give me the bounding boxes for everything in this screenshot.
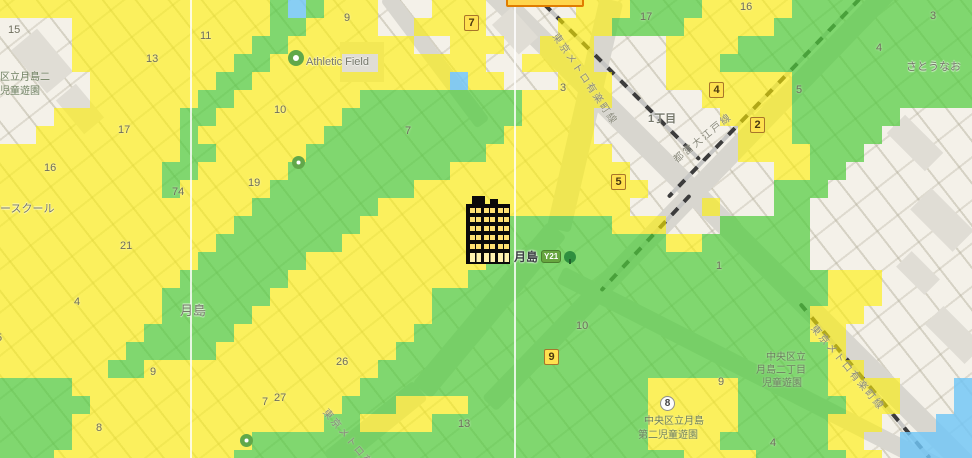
overlay-cell (630, 324, 648, 342)
overlay-cell (540, 162, 558, 180)
overlay-cell (360, 396, 378, 414)
overlay-cell (540, 108, 558, 126)
overlay-cell (342, 90, 360, 108)
overlay-cell (0, 234, 18, 252)
overlay-cell (324, 90, 342, 108)
lot-number-label: 74 (172, 186, 184, 198)
lot-number-label: 7 (405, 125, 411, 137)
overlay-cell (468, 342, 486, 360)
overlay-cell (108, 90, 126, 108)
overlay-cell (432, 126, 450, 144)
overlay-cell (738, 72, 756, 90)
overlay-cell (72, 234, 90, 252)
overlay-cell (396, 108, 414, 126)
overlay-cell (198, 450, 216, 458)
lot-number-label: 7 (262, 396, 268, 408)
overlay-cell (540, 288, 558, 306)
overlay-cell (306, 216, 324, 234)
overlay-cell (540, 144, 558, 162)
overlay-cell (486, 162, 504, 180)
overlay-cell (0, 288, 18, 306)
lot-number-label: 3 (930, 10, 936, 22)
overlay-cell (90, 396, 108, 414)
overlay-cell (738, 450, 756, 458)
map-canvas[interactable]: 1513119171634531071716741921110426992771… (0, 0, 972, 458)
overlay-cell (702, 414, 720, 432)
overlay-cell (468, 54, 486, 72)
lot-number-label: 26 (336, 356, 348, 368)
overlay-cell (702, 396, 720, 414)
overlay-cell (270, 198, 288, 216)
overlay-cell (936, 72, 954, 90)
overlay-cell (792, 234, 810, 252)
overlay-cell (594, 0, 612, 18)
overlay-cell (180, 432, 198, 450)
overlay-cell (234, 198, 252, 216)
overlay-cell (54, 126, 72, 144)
overlay-cell (666, 288, 684, 306)
overlay-cell (414, 216, 432, 234)
overlay-cell (234, 324, 252, 342)
overlay-cell (522, 324, 540, 342)
overlay-cell (792, 216, 810, 234)
overlay-cell (144, 324, 162, 342)
overlay-cell (936, 432, 954, 450)
overlay-cell (468, 72, 486, 90)
overlay-cell (180, 162, 198, 180)
overlay-cell (198, 54, 216, 72)
overlay-cell (270, 162, 288, 180)
poi-marker-icon[interactable] (292, 156, 305, 169)
overlay-cell (90, 234, 108, 252)
overlay-cell (288, 342, 306, 360)
overlay-cell (864, 72, 882, 90)
overlay-cell (558, 378, 576, 396)
overlay-cell (828, 54, 846, 72)
overlay-cell (414, 378, 432, 396)
overlay-cell (252, 36, 270, 54)
overlay-cell (198, 414, 216, 432)
overlay-cell (288, 0, 306, 18)
overlay-cell (414, 324, 432, 342)
overlay-cell (540, 198, 558, 216)
overlay-cell (18, 270, 36, 288)
overlay-cell (144, 342, 162, 360)
overlay-cell (342, 162, 360, 180)
overlay-cell (864, 54, 882, 72)
route-exit-shield: 4 (709, 82, 724, 98)
overlay-cell (270, 18, 288, 36)
overlay-cell (360, 18, 378, 36)
overlay-cell (666, 36, 684, 54)
overlay-cell (162, 72, 180, 90)
overlay-cell (72, 36, 90, 54)
overlay-cell (792, 450, 810, 458)
overlay-cell (486, 378, 504, 396)
overlay-cell (234, 144, 252, 162)
overlay-cell (360, 288, 378, 306)
overlay-cell (216, 396, 234, 414)
overlay-cell (18, 162, 36, 180)
overlay-cell (342, 126, 360, 144)
overlay-cell (828, 414, 846, 432)
overlay-cell (216, 72, 234, 90)
overlay-cell (90, 378, 108, 396)
overlay-cell (792, 252, 810, 270)
overlay-cell (54, 234, 72, 252)
overlay-cell (684, 252, 702, 270)
overlay-cell (576, 360, 594, 378)
overlay-cell (288, 18, 306, 36)
overlay-cell (54, 144, 72, 162)
overlay-cell (144, 234, 162, 252)
overlay-cell (522, 396, 540, 414)
overlay-cell (270, 324, 288, 342)
overlay-cell (810, 360, 828, 378)
overlay-cell (270, 414, 288, 432)
overlay-cell (378, 396, 396, 414)
overlay-cell (288, 288, 306, 306)
station-marker-tsukishima[interactable]: 月島 Y21 (514, 248, 576, 265)
overlay-cell (324, 270, 342, 288)
overlay-cell (738, 270, 756, 288)
overlay-cell (414, 144, 432, 162)
overlay-cell (234, 450, 252, 458)
overlay-cell (720, 36, 738, 54)
overlay-cell (216, 378, 234, 396)
overlay-cell (18, 432, 36, 450)
overlay-cell (360, 252, 378, 270)
overlay-cell (216, 108, 234, 126)
overlay-cell (486, 432, 504, 450)
overlay-cell (810, 270, 828, 288)
overlay-cell (18, 378, 36, 396)
overlay-cell (486, 288, 504, 306)
overlay-cell (198, 342, 216, 360)
overlay-cell (558, 450, 576, 458)
overlay-cell (522, 216, 540, 234)
overlay-cell (234, 54, 252, 72)
lot-number-label: 4 (74, 296, 80, 308)
overlay-cell (270, 252, 288, 270)
overlay-cell (612, 396, 630, 414)
overlay-cell (720, 252, 738, 270)
overlay-cell (198, 0, 216, 18)
overlay-cell (522, 432, 540, 450)
overlay-cell (144, 126, 162, 144)
overlay-cell (270, 144, 288, 162)
station-exit-badge: 8 (660, 396, 675, 411)
overlay-cell (90, 0, 108, 18)
overlay-cell (648, 378, 666, 396)
overlay-cell (720, 450, 738, 458)
overlay-cell (450, 162, 468, 180)
overlay-cell (720, 414, 738, 432)
overlay-cell (180, 126, 198, 144)
overlay-cell (144, 36, 162, 54)
overlay-cell (162, 198, 180, 216)
overlay-cell (828, 144, 846, 162)
overlay-cell (90, 324, 108, 342)
overlay-cell (720, 342, 738, 360)
overlay-cell (774, 162, 792, 180)
overlay-cell (846, 450, 864, 458)
overlay-cell (936, 90, 954, 108)
overlay-cell (756, 450, 774, 458)
overlay-cell (126, 306, 144, 324)
overlay-cell (792, 414, 810, 432)
overlay-cell (126, 144, 144, 162)
overlay-cell (684, 324, 702, 342)
overlay-cell (630, 234, 648, 252)
place-label: Athletic Field (306, 56, 369, 68)
overlay-cell (792, 36, 810, 54)
overlay-cell (504, 378, 522, 396)
overlay-cell (576, 216, 594, 234)
overlay-cell (108, 342, 126, 360)
overlay-cell (738, 306, 756, 324)
overlay-cell (126, 342, 144, 360)
overlay-cell (954, 36, 972, 54)
overlay-cell (828, 378, 846, 396)
overlay-cell (540, 90, 558, 108)
overlay-cell (522, 126, 540, 144)
overlay-cell (126, 90, 144, 108)
overlay-cell (828, 18, 846, 36)
overlay-cell (468, 126, 486, 144)
overlay-cell (306, 144, 324, 162)
overlay-cell (774, 216, 792, 234)
overlay-cell (486, 36, 504, 54)
overlay-cell (612, 270, 630, 288)
overlay-cell (936, 414, 954, 432)
overlay-cell (792, 432, 810, 450)
overlay-cell (594, 414, 612, 432)
overlay-cell (342, 288, 360, 306)
overlay-cell (36, 252, 54, 270)
overlay-cell (558, 288, 576, 306)
overlay-cell (18, 396, 36, 414)
overlay-cell (684, 342, 702, 360)
overlay-cell (702, 270, 720, 288)
overlay-cell (828, 36, 846, 54)
overlay-cell (630, 360, 648, 378)
overlay-cell (720, 396, 738, 414)
overlay-cell (36, 180, 54, 198)
lot-number-label: 13 (458, 418, 470, 430)
overlay-cell (720, 288, 738, 306)
overlay-cell (432, 306, 450, 324)
overlay-cell (558, 270, 576, 288)
overlay-cell (162, 36, 180, 54)
overlay-cell (864, 90, 882, 108)
overlay-cell (108, 216, 126, 234)
overlay-cell (144, 162, 162, 180)
overlay-cell (414, 90, 432, 108)
overlay-cell (648, 360, 666, 378)
overlay-cell (396, 360, 414, 378)
overlay-cell (54, 324, 72, 342)
overlay-cell (450, 108, 468, 126)
overlay-cell (846, 108, 864, 126)
overlay-cell (252, 306, 270, 324)
overlay-cell (756, 72, 774, 90)
overlay-cell (216, 126, 234, 144)
overlay-cell (558, 198, 576, 216)
overlay-cell (918, 90, 936, 108)
overlay-cell (666, 360, 684, 378)
overlay-cell (774, 144, 792, 162)
overlay-cell (198, 198, 216, 216)
overlay-cell (324, 450, 342, 458)
overlay-cell (594, 450, 612, 458)
overlay-cell (396, 90, 414, 108)
overlay-cell (252, 90, 270, 108)
overlay-cell (198, 72, 216, 90)
overlay-cell (900, 450, 918, 458)
overlay-cell (72, 144, 90, 162)
overlay-cell (54, 378, 72, 396)
overlay-cell (288, 450, 306, 458)
overlay-cell (432, 198, 450, 216)
overlay-cell (270, 0, 288, 18)
overlay-cell (450, 378, 468, 396)
overlay-cell (450, 144, 468, 162)
overlay-cell (774, 288, 792, 306)
overlay-cell (630, 306, 648, 324)
overlay-cell (180, 450, 198, 458)
overlay-cell (702, 36, 720, 54)
overlay-cell (180, 144, 198, 162)
overlay-cell (234, 342, 252, 360)
overlay-cell (576, 36, 594, 54)
overlay-cell (558, 324, 576, 342)
overlay-cell (774, 126, 792, 144)
overlay-cell (162, 414, 180, 432)
overlay-cell (342, 108, 360, 126)
overlay-cell (162, 54, 180, 72)
overlay-cell (792, 162, 810, 180)
overlay-cell (72, 450, 90, 458)
overlay-cell (108, 450, 126, 458)
overlay-cell (828, 0, 846, 18)
overlay-cell (432, 432, 450, 450)
overlay-cell (18, 252, 36, 270)
overlay-cell (90, 108, 108, 126)
overlay-cell (738, 18, 756, 36)
overlay-cell (324, 306, 342, 324)
place-label: さとうなお (906, 58, 961, 74)
overlay-cell (234, 378, 252, 396)
overlay-cell (360, 36, 378, 54)
overlay-cell (72, 342, 90, 360)
overlay-cell (594, 270, 612, 288)
overlay-cell (252, 288, 270, 306)
overlay-cell (72, 432, 90, 450)
overlay-cell (792, 288, 810, 306)
building-marker-icon[interactable] (464, 194, 512, 266)
overlay-cell (504, 450, 522, 458)
overlay-cell (702, 342, 720, 360)
overlay-cell (792, 306, 810, 324)
overlay-cell (108, 18, 126, 36)
lot-number-label: 5 (796, 84, 802, 96)
overlay-cell (18, 180, 36, 198)
overlay-cell (666, 18, 684, 36)
overlay-cell (828, 90, 846, 108)
overlay-cell (882, 72, 900, 90)
overlay-cell (0, 342, 18, 360)
overlay-cell (864, 270, 882, 288)
overlay-cell (666, 252, 684, 270)
overlay-cell (144, 180, 162, 198)
overlay-cell (558, 216, 576, 234)
overlay-cell (450, 270, 468, 288)
overlay-cell (882, 0, 900, 18)
overlay-cell (0, 162, 18, 180)
overlay-cell (576, 108, 594, 126)
overlay-cell (882, 54, 900, 72)
overlay-cell (72, 306, 90, 324)
poi-marker-icon[interactable] (240, 434, 253, 447)
overlay-cell (18, 234, 36, 252)
overlay-cell (216, 306, 234, 324)
overlay-cell (576, 162, 594, 180)
overlay-cell (252, 432, 270, 450)
overlay-cell (126, 198, 144, 216)
overlay-cell (756, 36, 774, 54)
overlay-cell (72, 414, 90, 432)
overlay-cell (414, 162, 432, 180)
overlay-cell (846, 144, 864, 162)
overlay-cell (774, 72, 792, 90)
overlay-cell (900, 36, 918, 54)
lot-number-label: 17 (640, 11, 652, 23)
overlay-cell (144, 450, 162, 458)
overlay-cell (288, 252, 306, 270)
overlay-cell (882, 18, 900, 36)
overlay-cell (72, 126, 90, 144)
overlay-cell (432, 270, 450, 288)
overlay-cell (522, 270, 540, 288)
overlay-cell (684, 288, 702, 306)
overlay-cell (576, 414, 594, 432)
overlay-cell (36, 0, 54, 18)
overlay-cell (810, 162, 828, 180)
overlay-cell (810, 108, 828, 126)
overlay-cell (288, 306, 306, 324)
overlay-cell (360, 306, 378, 324)
overlay-cell (450, 90, 468, 108)
overlay-cell (468, 144, 486, 162)
overlay-cell (486, 126, 504, 144)
overlay-cell (540, 54, 558, 72)
overlay-cell (180, 198, 198, 216)
overlay-cell (36, 288, 54, 306)
overlay-cell (18, 342, 36, 360)
overlay-cell (432, 360, 450, 378)
overlay-cell (360, 324, 378, 342)
overlay-cell (180, 108, 198, 126)
overlay-cell (810, 126, 828, 144)
overlay-cell (198, 180, 216, 198)
overlay-cell (432, 0, 450, 18)
overlay-cell (90, 360, 108, 378)
route-exit-shield: 7 (464, 15, 479, 31)
overlay-cell (306, 360, 324, 378)
overlay-cell (216, 360, 234, 378)
poi-marker-icon[interactable] (288, 50, 304, 66)
